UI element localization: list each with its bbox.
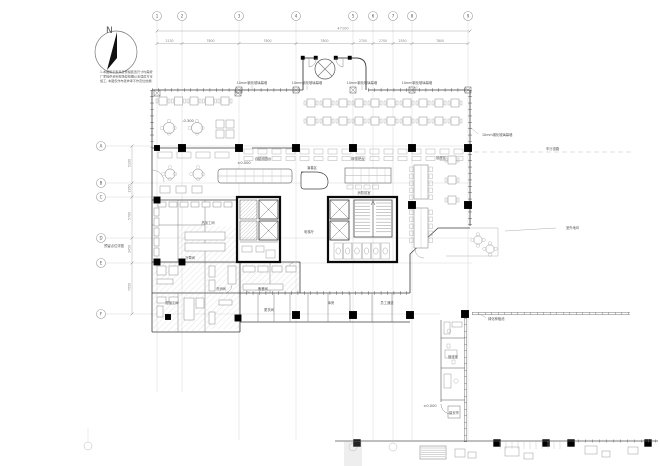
dining-table <box>216 130 224 138</box>
chair <box>187 99 189 103</box>
room-label: 10mm钢化玻璃幕墙 <box>482 132 513 137</box>
fragment-fixture <box>468 452 476 458</box>
toilet <box>383 248 388 254</box>
booth-seat <box>398 157 407 161</box>
grid-bubble-label: 4 <box>295 14 298 19</box>
chair <box>457 158 459 162</box>
chair <box>429 195 433 200</box>
note-line: 厂家提供资料现场复核确认无误后方可 <box>100 74 153 79</box>
dining-table <box>323 99 331 107</box>
dining-table <box>451 99 459 107</box>
toilet <box>355 248 360 254</box>
column-marker <box>154 197 161 204</box>
desk <box>452 322 462 327</box>
kitchen-equipment <box>169 202 177 207</box>
room-label: 电梯厅 <box>304 229 315 234</box>
grid-bubble <box>84 442 92 450</box>
room-label: 绿化种植池 <box>488 316 505 321</box>
kitchen-equipment <box>209 312 215 324</box>
booth-seat <box>158 152 172 158</box>
chair <box>368 101 370 105</box>
chair <box>410 231 414 236</box>
grid-bubble-label: 1 <box>156 14 159 19</box>
dining-table <box>419 99 427 107</box>
chair <box>348 101 350 105</box>
column-marker <box>494 440 501 447</box>
shaft-room <box>240 200 257 219</box>
room-label: 值班室 <box>448 354 459 359</box>
chair <box>316 101 318 105</box>
chair <box>400 101 402 105</box>
chair <box>304 101 306 105</box>
dim-text: 7800 <box>206 39 214 43</box>
dining-table <box>323 117 331 125</box>
chair <box>190 172 193 175</box>
chair <box>410 195 414 200</box>
kitchen-equipment <box>157 306 163 317</box>
booth-seat <box>454 149 463 154</box>
toilet <box>374 248 379 254</box>
kitchen-equipment <box>154 248 159 256</box>
chair <box>448 119 450 123</box>
kitchen-equipment <box>243 266 255 272</box>
overall-dim-text: 47100 <box>337 27 349 31</box>
kitchen-equipment <box>154 238 159 246</box>
kitchen-equipment <box>184 298 194 320</box>
dim-text: 1950 <box>128 184 132 192</box>
booth-seat <box>370 157 379 161</box>
booth-seat <box>440 149 449 154</box>
chair <box>188 126 191 129</box>
chair <box>348 119 350 123</box>
booth-seat <box>272 149 281 154</box>
column-marker <box>235 315 242 322</box>
dining-table <box>339 117 347 125</box>
kitchen-equipment <box>191 202 199 207</box>
kitchen-equipment <box>209 266 215 277</box>
room-label: 库房 <box>328 300 335 305</box>
room-label: 冷荤间 <box>185 255 195 260</box>
chair <box>162 172 165 175</box>
room-label: 更衣间 <box>264 307 274 312</box>
dining-table <box>159 97 167 105</box>
chair <box>380 119 382 123</box>
booth-seat <box>300 149 309 154</box>
desk <box>444 322 450 334</box>
booth-seat <box>370 149 379 154</box>
fragment-fixture <box>628 447 638 454</box>
door-jamb <box>314 56 318 60</box>
chair <box>416 119 418 123</box>
desk <box>444 374 451 388</box>
dining-table <box>448 176 456 184</box>
chair <box>429 181 433 186</box>
kitchen-equipment <box>196 298 204 308</box>
chair <box>195 119 198 122</box>
dining-table <box>435 117 443 125</box>
booth-seat <box>196 152 210 158</box>
room-label: 10mm钢化玻璃幕墙 <box>347 80 378 85</box>
kitchen-equipment <box>228 266 236 284</box>
booth-seat <box>412 157 421 161</box>
grid-bubble-label: E <box>100 261 103 266</box>
chair <box>445 178 447 182</box>
room-label: 散座区 <box>436 155 447 160</box>
chair <box>172 99 174 103</box>
elevation-mark: ±0.000 <box>423 404 437 408</box>
door-swing <box>152 170 164 182</box>
room-label: 预留点位详图 <box>104 243 124 248</box>
chair <box>452 360 455 364</box>
chair <box>429 217 433 222</box>
dim-text: 5700 <box>128 212 132 220</box>
chair <box>320 101 322 105</box>
column-marker <box>178 144 186 152</box>
kitchen-equipment <box>286 266 296 272</box>
grid-bubble-label: 5 <box>352 14 355 19</box>
chair <box>410 217 414 222</box>
dining-table <box>221 97 229 105</box>
chair <box>396 101 398 105</box>
toilet <box>345 248 350 254</box>
leader-line <box>505 228 556 231</box>
door-swing <box>415 249 424 258</box>
dim-text: 5100 <box>128 159 132 167</box>
grid-bubble-label: B <box>100 181 103 186</box>
dim-text: 3450 <box>128 245 132 253</box>
chair <box>432 101 434 105</box>
chair <box>428 119 430 123</box>
kitchen-equipment <box>180 202 188 207</box>
room-label: 备餐间 <box>258 286 268 291</box>
chair <box>364 101 366 105</box>
column-marker <box>461 310 469 318</box>
room-label: 消防前室 <box>357 190 371 195</box>
grid-bubble-label: 2 <box>181 14 184 19</box>
chair <box>457 178 459 182</box>
room-label: 员工通道 <box>380 300 394 305</box>
booth-seat <box>328 157 337 161</box>
room-label: 热加工间 <box>201 220 214 225</box>
grid-bubble-label: 8 <box>411 14 414 19</box>
dining-table <box>371 117 379 125</box>
elevation-mark: ±0.000 <box>237 161 251 165</box>
chair <box>410 188 414 193</box>
chair <box>429 174 433 179</box>
kitchen-equipment <box>154 218 159 226</box>
chair <box>199 99 201 103</box>
kitchen-equipment <box>185 232 225 240</box>
chair <box>429 238 433 243</box>
dining-table <box>387 117 395 125</box>
dining-table <box>355 99 363 107</box>
column-marker <box>349 144 357 152</box>
kitchen-equipment <box>157 279 173 284</box>
chair <box>396 119 398 123</box>
site-elements <box>252 86 632 443</box>
booth-seat <box>177 152 191 158</box>
furniture <box>156 97 463 248</box>
dining-table <box>206 97 214 105</box>
counter-box <box>373 185 379 189</box>
chair <box>336 101 338 105</box>
chair <box>316 119 318 123</box>
dining-table <box>192 186 202 193</box>
chair <box>364 119 366 123</box>
chair <box>168 166 171 169</box>
dining-table <box>435 99 443 107</box>
chair <box>412 119 414 123</box>
grid-bubble-label: 7 <box>392 14 395 19</box>
chair <box>416 101 418 105</box>
column-marker <box>464 201 472 209</box>
wc-stall <box>381 243 389 259</box>
kitchen-equipment <box>258 266 268 272</box>
grid-bubble <box>389 443 397 451</box>
column-marker <box>235 144 243 152</box>
dining-table <box>387 99 395 107</box>
column-marker <box>406 311 414 319</box>
north-arrow-needle <box>107 32 117 70</box>
chair <box>410 210 414 215</box>
dim-text: 7800 <box>263 39 271 43</box>
chair <box>410 181 414 186</box>
kitchen-equipment <box>157 266 166 275</box>
dining-table <box>451 117 459 125</box>
fragment-fixture <box>585 446 597 454</box>
leader-line <box>470 127 478 134</box>
chair <box>167 119 170 122</box>
dim-text: 7800 <box>320 39 328 43</box>
chair <box>320 119 322 123</box>
chair <box>429 188 433 193</box>
chair <box>410 224 414 229</box>
chair <box>448 101 450 105</box>
column-marker <box>292 144 300 152</box>
grid-bubble-label: 9 <box>467 14 470 19</box>
grand-piano <box>301 172 328 189</box>
chair <box>429 224 433 229</box>
general-notes: 1.本图所示家具及预留装置尺寸均需按 厂家提供资料现场复核确认无误后方可 施工,… <box>100 69 153 83</box>
booth-seat <box>314 157 323 161</box>
toilet <box>364 248 369 254</box>
dining-table <box>160 186 170 193</box>
booth-seat <box>286 157 295 161</box>
booth-seat <box>272 157 281 161</box>
chair <box>230 99 232 103</box>
kitchen-equipment <box>224 202 232 207</box>
core-fixture <box>256 246 264 252</box>
booth-seat <box>328 149 337 154</box>
chair <box>428 101 430 105</box>
chair <box>184 99 186 103</box>
column-marker <box>568 440 575 447</box>
dining-table <box>419 117 427 125</box>
room-label: 粗加工间 <box>165 300 178 305</box>
dim-text: 7050 <box>128 283 132 291</box>
room-label: 室外地坪 <box>566 225 580 230</box>
kitchen-equipment <box>154 228 159 236</box>
column-marker <box>543 440 550 447</box>
dining-table <box>355 117 363 125</box>
column-marker <box>408 144 416 152</box>
toilet <box>336 248 341 254</box>
chair <box>196 166 199 169</box>
room-label: 车行道路 <box>546 146 560 151</box>
room-label: 10mm钢化玻璃幕墙 <box>402 80 433 85</box>
kitchen-equipment <box>185 243 225 251</box>
chair <box>457 198 459 202</box>
chair <box>460 119 462 123</box>
dining-table <box>216 120 224 128</box>
chair <box>444 101 446 105</box>
chair <box>168 99 170 103</box>
chair <box>203 99 205 103</box>
column-marker <box>464 144 472 152</box>
room-label: 洗消间 <box>216 286 226 291</box>
terrace-table <box>474 236 482 244</box>
chair <box>447 344 450 348</box>
column-marker <box>154 145 160 151</box>
floor-plan-sheet: 4710021307800780078002700270025507800510… <box>0 0 660 466</box>
wc-stall <box>353 243 361 259</box>
chair <box>410 174 414 179</box>
elevation-mark: -0.300 <box>182 119 194 123</box>
column-marker <box>154 259 161 266</box>
kitchen-equipment <box>219 300 232 305</box>
chair <box>445 198 447 202</box>
north-arrow: N <box>95 26 137 73</box>
chair <box>332 101 334 105</box>
dining-table <box>190 97 198 105</box>
dining-table <box>371 99 379 107</box>
room-label: 10mm钢化玻璃幕墙 <box>237 80 268 85</box>
booth-seat <box>384 157 393 161</box>
grid-bubble-label: D <box>99 236 102 241</box>
dining-table <box>339 99 347 107</box>
leader-line <box>478 314 486 318</box>
wc-stall <box>334 243 342 259</box>
room-label: 演奏区 <box>307 165 318 170</box>
booth-seat <box>215 152 229 158</box>
dim-text: 2700 <box>359 39 367 43</box>
chair <box>444 119 446 123</box>
booth-seat <box>244 157 253 161</box>
note-line: 1.本图所示家具及预留装置尺寸均需按 <box>100 69 152 74</box>
north-arrow-label: N <box>106 26 113 36</box>
dining-table <box>226 120 234 128</box>
dining-table <box>403 117 411 125</box>
column-marker <box>408 201 416 209</box>
room-label: 服务吧台 <box>351 156 365 161</box>
booth-seat <box>398 149 407 154</box>
chair <box>429 167 433 172</box>
booth-seat <box>426 149 435 154</box>
chair <box>218 99 220 103</box>
counter-box <box>347 185 353 189</box>
kitchen-equipment <box>202 202 210 207</box>
room-label: 保安亭 <box>449 410 460 415</box>
core-fixture <box>242 246 252 252</box>
booth-seat <box>300 157 309 161</box>
counter-box <box>364 185 370 189</box>
dim-text: 2700 <box>379 39 387 43</box>
grid-bubble-label: F <box>100 312 103 317</box>
chair <box>432 119 434 123</box>
column-marker <box>292 311 300 319</box>
chair <box>160 126 163 129</box>
booth-seat <box>342 157 351 161</box>
chair <box>410 167 414 172</box>
chair <box>384 101 386 105</box>
core-fixture <box>266 250 275 258</box>
chair <box>304 119 306 123</box>
kitchen-equipment <box>213 202 221 207</box>
booth-seat <box>258 149 267 154</box>
terrace-table <box>486 245 494 253</box>
chair <box>412 101 414 105</box>
chair <box>410 238 414 243</box>
booth-seat <box>244 149 253 154</box>
booth-seat <box>356 149 365 154</box>
chair <box>384 119 386 123</box>
chair <box>332 119 334 123</box>
dining-table <box>307 99 315 107</box>
grid-bubble-label: 6 <box>372 14 375 19</box>
grid-bubble-label: A <box>100 144 103 149</box>
kitchen-equipment <box>272 266 282 272</box>
chair <box>368 119 370 123</box>
fragment-fixture <box>455 449 465 457</box>
note-line: 施工, 本图仅作布置参考不作定位依据. <box>100 78 152 83</box>
chair <box>380 101 382 105</box>
floor-plan-drawing: 4710021307800780078002700270025507800510… <box>0 0 660 466</box>
grid-bubble-label: 3 <box>238 14 241 19</box>
kitchen-equipment <box>209 280 215 291</box>
dining-table <box>226 130 234 138</box>
booth-seat <box>384 149 393 154</box>
vestibule-wall <box>350 58 366 90</box>
kitchen-equipment <box>169 266 178 275</box>
terrace-edge <box>446 228 498 256</box>
column-marker <box>165 314 171 320</box>
dim-text: 2550 <box>398 39 406 43</box>
wc-stall <box>343 243 351 259</box>
fragment-fixture <box>602 451 610 457</box>
dining-table <box>307 117 315 125</box>
door-jamb <box>348 56 352 60</box>
booth-seat <box>314 149 323 154</box>
booth-seat <box>426 157 435 161</box>
text-labels: 10mm钢化玻璃幕墙10mm钢化玻璃幕墙10mm钢化玻璃幕墙10mm钢化玻璃幕墙… <box>104 80 580 415</box>
dining-table <box>176 186 186 193</box>
chair <box>429 210 433 215</box>
dining-table <box>175 97 183 105</box>
column-marker <box>349 311 357 319</box>
counter-box <box>356 185 362 189</box>
door-jamb <box>301 56 305 60</box>
room-label: 自助明档台 <box>255 156 272 161</box>
kitchen-equipment <box>154 208 159 216</box>
chair <box>215 99 217 103</box>
shaft-room <box>240 221 257 240</box>
dining-table <box>403 99 411 107</box>
chair <box>447 329 451 333</box>
dim-text: 7800 <box>436 39 444 43</box>
chair <box>454 379 458 383</box>
fragment-fixture <box>524 453 533 459</box>
chair <box>400 119 402 123</box>
